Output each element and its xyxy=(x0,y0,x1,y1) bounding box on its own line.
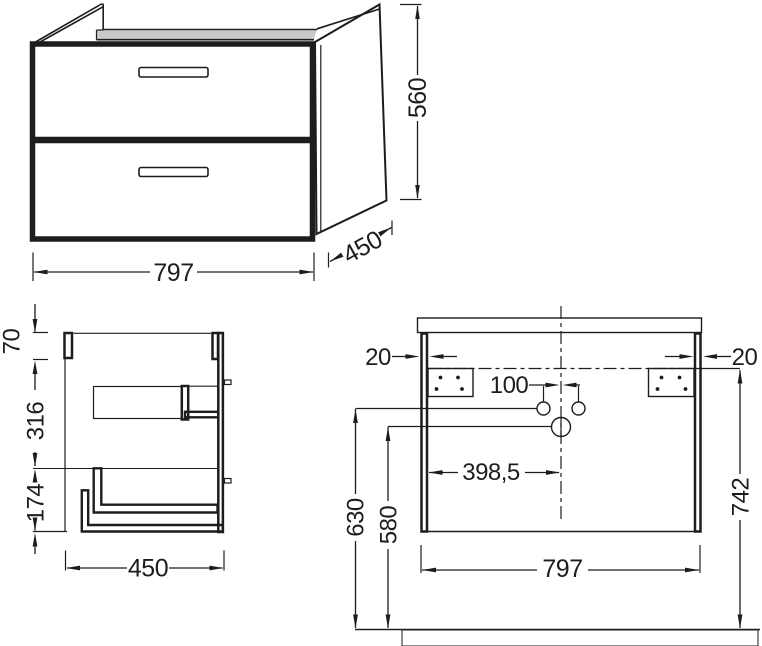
dim-chain-side: 70 316 174 xyxy=(0,304,67,554)
arrowhead xyxy=(33,319,38,333)
arrowhead xyxy=(378,228,391,237)
right-side-panel xyxy=(695,334,701,532)
side-panel-perspective xyxy=(315,5,387,235)
bracket-hole xyxy=(456,376,460,380)
supply-hole-left xyxy=(537,402,550,415)
arrowhead xyxy=(66,566,80,571)
arrowhead xyxy=(330,253,343,262)
arrowhead xyxy=(422,568,436,573)
arrowhead xyxy=(34,270,48,275)
arrowhead xyxy=(33,533,38,547)
dim-center-offset-398-5: 398,5 xyxy=(429,459,561,486)
arrowhead xyxy=(406,354,420,359)
bracket-hole xyxy=(684,387,688,391)
arrowhead xyxy=(386,427,391,441)
back-top-edge xyxy=(317,9,380,29)
arrowhead xyxy=(685,568,699,573)
dim-label-height: 560 xyxy=(404,78,432,118)
left-side-panel xyxy=(422,334,428,532)
technical-drawing-page: 560 797 450 xyxy=(0,0,762,646)
arrowhead xyxy=(546,470,560,475)
mounting-bracket-right xyxy=(649,369,695,397)
upper-drawer-runner xyxy=(185,412,218,418)
arrowhead xyxy=(415,5,420,19)
front-view: 560 797 450 xyxy=(32,4,432,287)
back-rail-fill xyxy=(97,31,317,40)
arrowhead xyxy=(546,383,560,388)
lower-drawer-profile xyxy=(94,468,218,512)
dim-thickness-20-right: 20 xyxy=(665,344,757,371)
arrowhead xyxy=(300,270,314,275)
dim-label-center-offset: 398,5 xyxy=(462,459,520,486)
dim-thickness-20-left: 20 xyxy=(365,344,457,371)
bracket-hole xyxy=(439,376,443,380)
dim-height-742: 742 xyxy=(695,369,755,629)
dim-depth-450-side: 450 xyxy=(66,551,225,583)
dim-label-fixing-height: 742 xyxy=(728,478,755,517)
arrowhead xyxy=(680,354,694,359)
bracket-hole xyxy=(660,376,664,380)
dim-height-560: 560 xyxy=(400,5,432,200)
arrowhead xyxy=(430,354,444,359)
dim-label-width: 797 xyxy=(542,555,582,583)
arrowhead xyxy=(563,383,577,388)
arrowhead xyxy=(33,469,38,483)
dim-height-630: 630 xyxy=(343,409,538,629)
bracket-hole xyxy=(656,387,660,391)
dim-width-797-front: 797 xyxy=(33,253,314,288)
bracket-hole xyxy=(678,376,682,380)
arrowhead xyxy=(386,615,391,629)
dim-label-outlet-height: 580 xyxy=(376,506,403,545)
fixing-tab-upper xyxy=(225,380,232,385)
arrowhead xyxy=(353,409,358,423)
mounting-bracket-left xyxy=(428,369,473,397)
left-back-edge-outer xyxy=(32,5,100,44)
wall-rail-section xyxy=(65,333,73,358)
top-panel xyxy=(418,318,702,333)
dim-width-797-back: 797 xyxy=(421,545,700,583)
upper-drawer-box xyxy=(94,387,183,419)
arrowhead xyxy=(703,354,717,359)
side-view: 70 316 174 450 xyxy=(0,304,231,583)
dim-hole-spacing-100: 100 xyxy=(490,372,580,402)
dim-label-right-thickness: 20 xyxy=(732,344,758,371)
supply-hole-right xyxy=(572,402,585,415)
dim-label-top-offset: 70 xyxy=(0,329,26,355)
arrowhead xyxy=(33,518,38,532)
back-view: 20 20 100 xyxy=(343,306,761,646)
arrowhead xyxy=(429,470,443,475)
arrowhead xyxy=(738,370,743,384)
bottom-panel-profile xyxy=(82,490,223,531)
dim-depth-450-front: 450 xyxy=(329,221,393,270)
dim-label-hole-spacing: 100 xyxy=(490,372,529,399)
dim-label-width: 797 xyxy=(153,259,193,287)
left-back-edge-inner xyxy=(37,7,104,44)
bracket-hole xyxy=(460,387,464,391)
fixing-tab-lower xyxy=(225,479,232,484)
technical-drawing: 560 797 450 xyxy=(0,0,762,646)
arrowhead xyxy=(210,566,224,571)
ground-hatching xyxy=(402,630,758,646)
back-panel-section xyxy=(218,333,223,532)
dim-label-upper-section: 316 xyxy=(23,402,50,441)
dim-label-lower-section: 174 xyxy=(23,484,50,523)
dim-label-holes-height: 630 xyxy=(343,498,370,537)
arrowhead xyxy=(33,453,38,467)
arrowhead xyxy=(353,615,358,629)
dim-label-left-thickness: 20 xyxy=(365,344,391,371)
dim-height-580: 580 xyxy=(376,427,552,629)
bracket-hole xyxy=(435,387,439,391)
arrowhead xyxy=(738,615,743,629)
arrowhead xyxy=(33,361,38,375)
dim-label-depth: 450 xyxy=(128,555,168,583)
arrowhead xyxy=(415,185,420,199)
